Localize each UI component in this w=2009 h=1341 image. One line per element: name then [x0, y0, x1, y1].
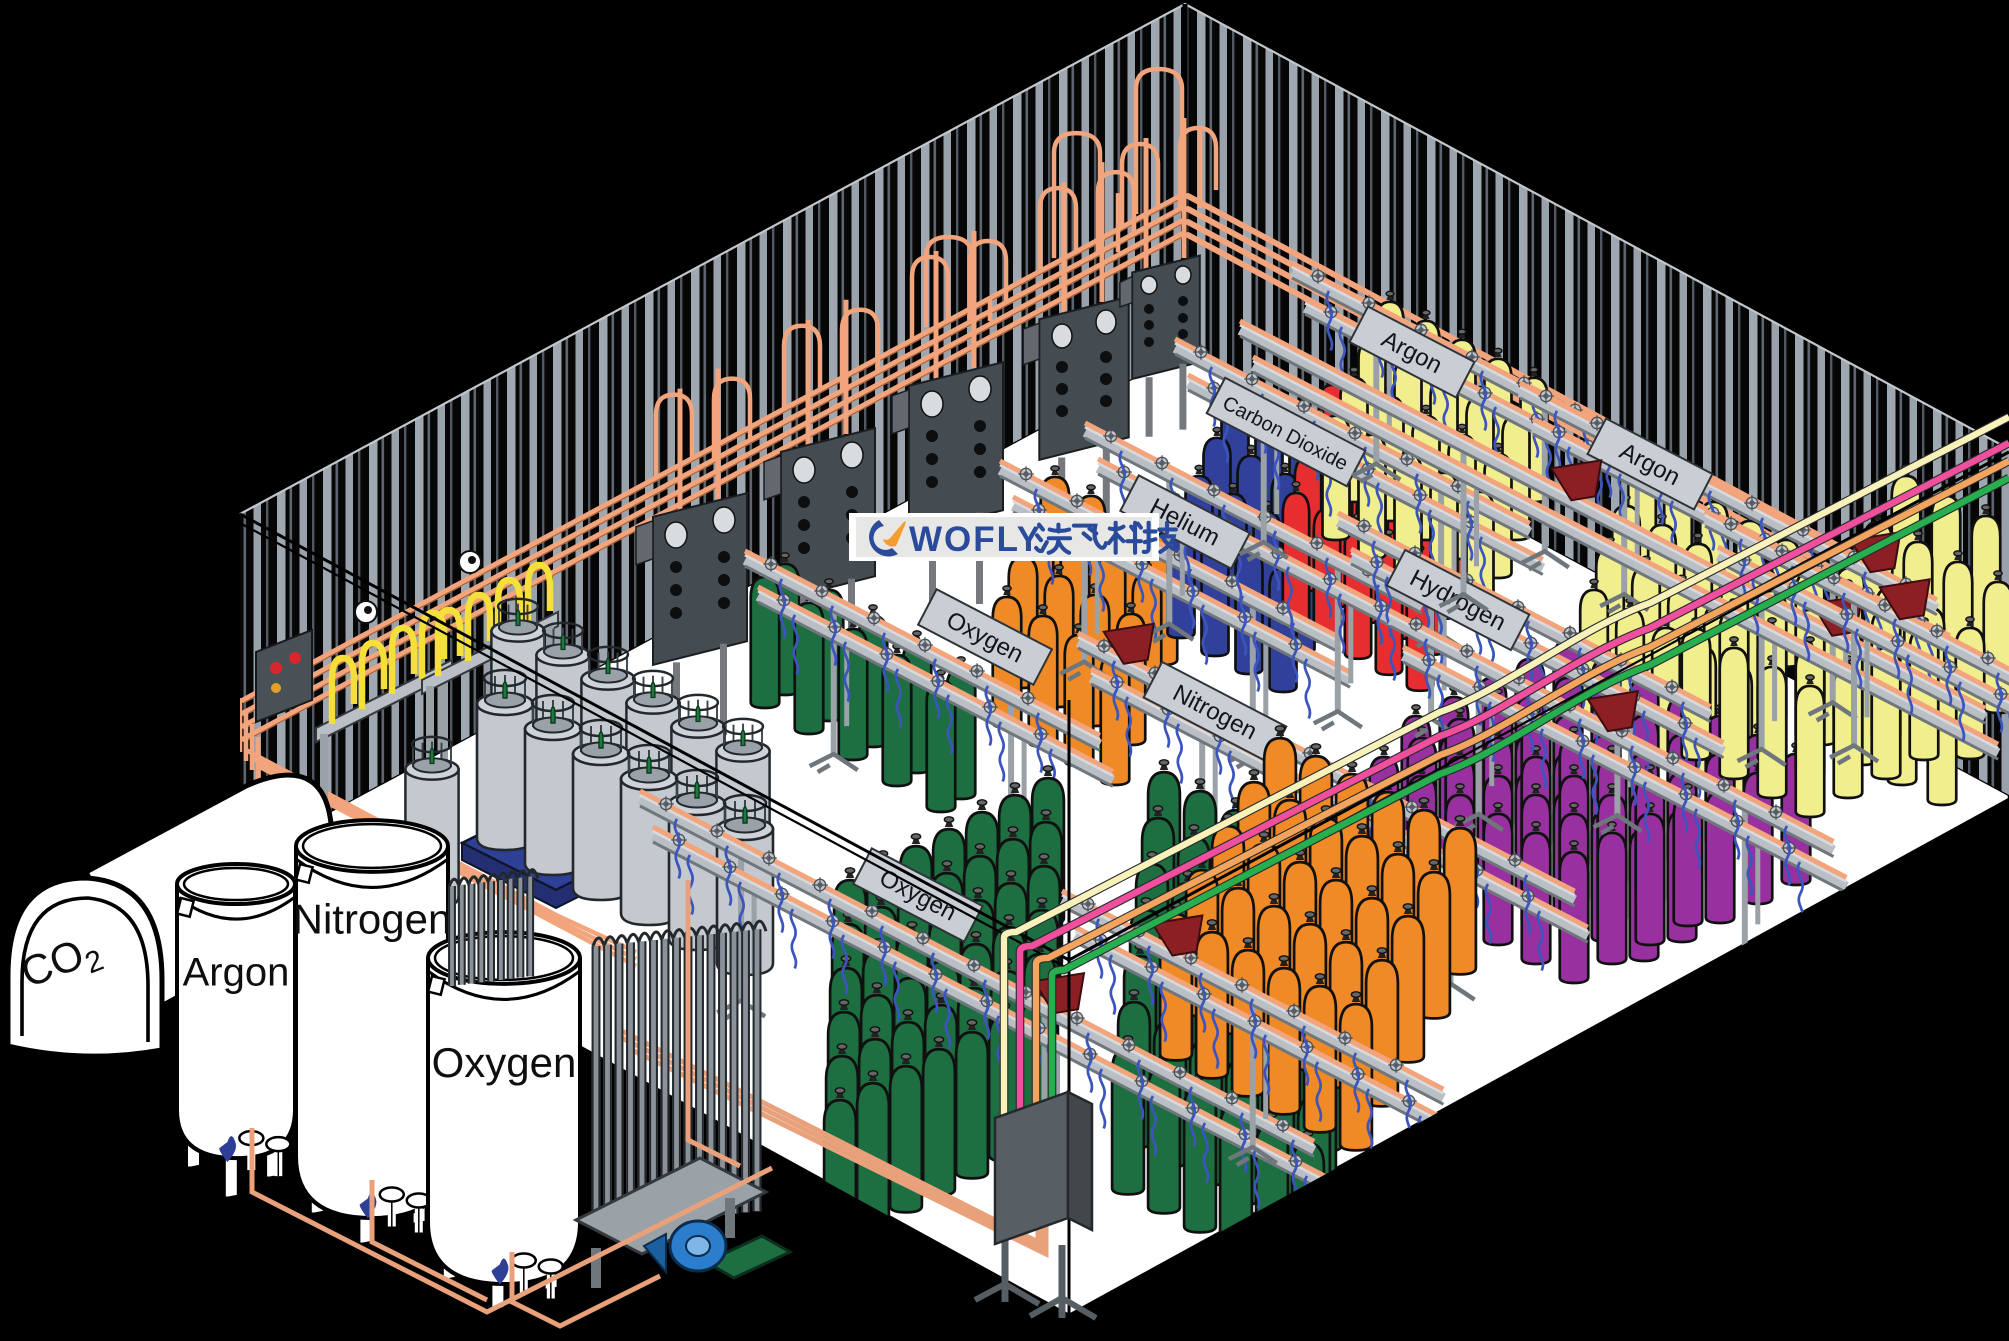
svg-text:Argon: Argon [183, 951, 290, 995]
svg-text:Nitrogen: Nitrogen [293, 896, 452, 943]
svg-text:Oxygen: Oxygen [432, 1039, 577, 1086]
svg-text:WOFLY: WOFLY [909, 520, 1042, 559]
